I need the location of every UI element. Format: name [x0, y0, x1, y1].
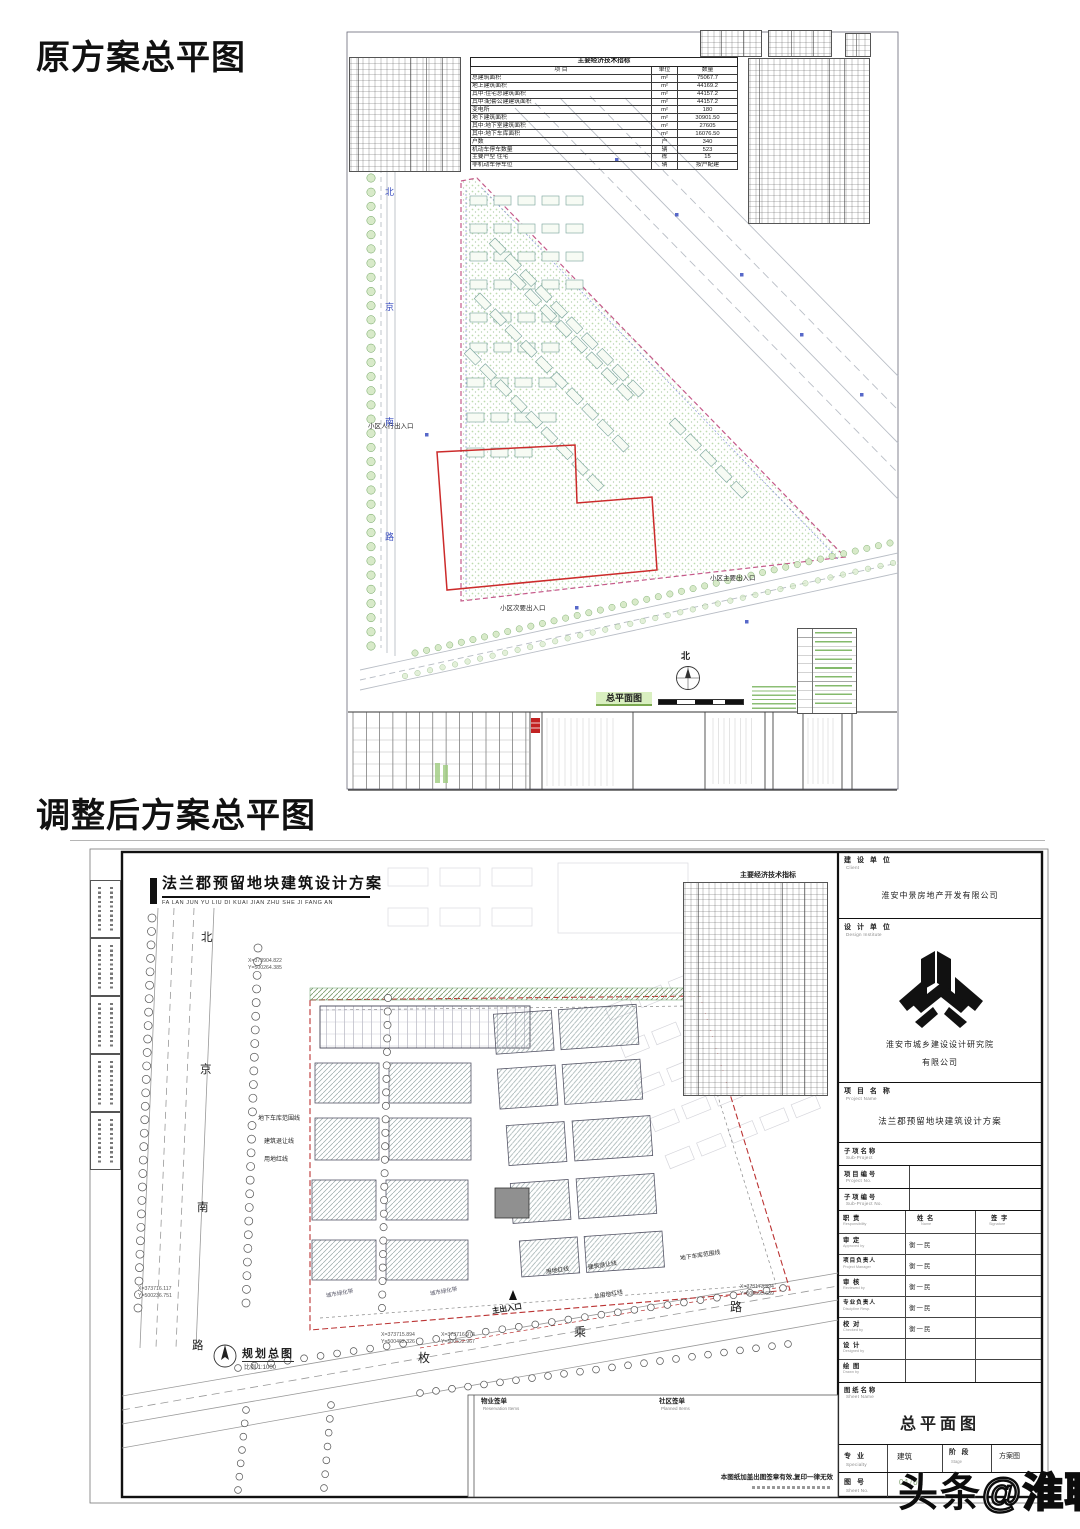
coord-label: X=373715.894Y=500462.326	[381, 1332, 415, 1345]
green-stamp	[435, 763, 440, 783]
validity-note-en	[752, 1486, 832, 1489]
coord-label: X=373904.822Y=500264.385	[248, 958, 282, 971]
green-belt-strip	[310, 988, 700, 1000]
box-left-label-en: Reservation Items	[483, 1407, 519, 1412]
titleblock-strip	[348, 712, 897, 790]
sig-row: 审 核Reviewed by衡一民	[839, 1275, 1041, 1297]
community-building	[495, 1188, 529, 1218]
existing-buildings-north	[388, 863, 688, 933]
new-building-left-cluster	[312, 1063, 471, 1280]
sig-row: 专业负责人Discipline Resp.衡一民	[839, 1296, 1041, 1318]
section1-title: 原方案总平图	[36, 30, 246, 79]
coord-label: X=373173.394Y=500595.639	[740, 1284, 774, 1297]
mini-table-3	[845, 33, 871, 57]
road-v-char: 京	[200, 1064, 212, 1077]
scale-bar	[658, 699, 744, 705]
road-char: 北	[385, 188, 394, 198]
title-bar-mark	[150, 878, 157, 904]
road-char: 南	[385, 418, 394, 428]
mini-table-1	[700, 30, 762, 57]
table-row: 机动车停车数量辆523	[471, 146, 738, 154]
table-row: 其中:住宅总建筑面积m²44157.2	[471, 90, 738, 98]
legend-table	[797, 628, 857, 714]
sig-row: 项目负责人Project Manager衡一民	[839, 1254, 1041, 1276]
watermark-outline: @淮聊	[982, 1471, 1080, 1515]
road-char: 路	[385, 533, 394, 543]
countersign-cell	[90, 1054, 121, 1112]
road-h-char: 乘	[574, 1326, 586, 1339]
table-row: 户数户340	[471, 138, 738, 146]
road-h-char: 枚	[418, 1352, 430, 1365]
sheet-name: 总平面图	[839, 1410, 1041, 1434]
coord-label: X=373716.117Y=500236.751	[138, 1286, 172, 1299]
plan-scale: 比例 1:1000	[244, 1365, 276, 1372]
garage-line-label: 地下车库范围线	[258, 1116, 300, 1123]
title-underline	[162, 896, 370, 898]
drawing-title: 法兰郡预留地块建筑设计方案	[162, 876, 383, 893]
table-row: 主要户型 住宅栋15	[471, 154, 738, 162]
subno-cell: 子项编号 Sub-Project No.	[839, 1189, 1041, 1211]
adjusted-plan-sheet: 法兰郡预留地块建筑设计方案 FA LAN JUN YU LIU DI KUAI …	[88, 848, 1063, 1508]
box-left-label: 物业签单	[481, 1398, 507, 1405]
table-row: 其中:地下车库面积m²16076.50	[471, 130, 738, 138]
sig-row: 绘 图Drawn by	[839, 1359, 1041, 1383]
plan-caption: 规划总图	[242, 1348, 294, 1362]
table-row: 其中:地下室建筑面积m²27605	[471, 122, 738, 130]
box-right-label: 社区签单	[659, 1398, 685, 1405]
econ2-table	[683, 882, 828, 1096]
design-institute-name: 淮安市城乡建设设计研究院	[839, 1039, 1041, 1050]
countersign-cell	[90, 938, 121, 996]
econ2-title: 主要经济技术指标	[708, 872, 828, 880]
design-institute-logo	[891, 943, 991, 1033]
box-right-label-en: Planned Items	[661, 1407, 690, 1412]
subproject-cell: 子项名称 Sub-Project	[839, 1143, 1041, 1166]
secondary-entrance-label: 小区次要出入口	[500, 605, 546, 612]
watermark-solid: 头条	[898, 1471, 982, 1515]
projectno-cell: 项目编号 Project No.	[839, 1166, 1041, 1189]
design-institute-name-2: 有限公司	[839, 1057, 1041, 1068]
bottom-box	[468, 1395, 838, 1497]
compass	[214, 1345, 236, 1367]
west-road-lines	[381, 168, 395, 656]
coord-label: X=373716.974Y=500522.967	[441, 1332, 475, 1345]
section2-title: 调整后方案总平图	[36, 788, 316, 837]
sig-row: 设 计Designed by	[839, 1338, 1041, 1360]
publisher-logo	[531, 718, 540, 733]
client-name: 淮安中景房地产开发有限公司	[839, 890, 1041, 901]
road-v-char: 路	[192, 1340, 204, 1353]
table-row: 变电所m²180	[471, 106, 738, 114]
road-char: 京	[385, 303, 394, 313]
original-plan-sheet: 主要经济技术指标 项 目单位数量 总建筑面积m²75067.7 地上建筑面积m²…	[345, 28, 900, 793]
watermark: 头条@淮聊	[898, 1460, 1080, 1518]
table-row: 地下建筑面积m²30901.50	[471, 114, 738, 122]
table-row: 地上建筑面积m²44169.2	[471, 82, 738, 90]
mini-table-2	[768, 30, 832, 57]
entrance-arrow	[509, 1290, 517, 1300]
economic-indicator-table: 主要经济技术指标 项 目单位数量 总建筑面积m²75067.7 地上建筑面积m²…	[470, 57, 738, 170]
sig-row: 校 对Checked by衡一民	[839, 1317, 1041, 1339]
main-entrance-label: 小区主要出入口	[710, 575, 756, 582]
table-row: 非机动车停车位辆按户配建	[471, 161, 738, 169]
north-arrow	[677, 667, 700, 690]
countersign-cell	[90, 996, 121, 1054]
road-v-char: 南	[197, 1202, 209, 1215]
tree-row-west	[367, 174, 375, 650]
table-row: 其中:配套公建建筑面积m²44157.2	[471, 98, 738, 106]
countersign-cell	[90, 1112, 121, 1170]
project-cell: 项 目 名 称 Project Name 法兰郡预留地块建筑设计方案	[839, 1083, 1041, 1143]
right-indicator-table	[748, 58, 870, 224]
new-building-right-cluster	[493, 1004, 664, 1278]
road-h-char: 路	[730, 1301, 742, 1314]
section2-underline	[70, 840, 1045, 841]
client-cell: 建 设 单 位 Client 淮安中景房地产开发有限公司	[839, 852, 1041, 919]
left-indicator-table	[349, 57, 461, 172]
north-label: 北	[681, 652, 690, 662]
plan-caption: 总平面图	[596, 692, 652, 706]
project-name: 法兰郡预留地块建筑设计方案	[839, 1115, 1041, 1127]
site-vegetation	[461, 178, 845, 601]
sheetname-cell: 图纸名称 Sheet Name 总平面图	[839, 1382, 1041, 1445]
green-notes	[752, 686, 796, 712]
road-v-char: 北	[201, 932, 213, 945]
econ-table-title: 主要经济技术指标	[471, 58, 738, 67]
sig-row: 审 定Approved by衡一民	[839, 1233, 1041, 1255]
validity-note: 本图纸加盖出图签章有效,复印一律无效	[648, 1474, 833, 1481]
setback-line-label: 建筑退让线	[264, 1139, 294, 1146]
redline-label: 用地红线	[264, 1157, 288, 1164]
setback-dashed-bottom	[320, 1284, 776, 1318]
countersign-cell	[90, 880, 121, 938]
title-pinyin: FA LAN JUN YU LIU DI KUAI JIAN ZHU SHE J…	[162, 900, 333, 906]
table-row: 总建筑面积m²75067.7	[471, 74, 738, 82]
sig-header-row: 职 责Responsibility 姓 名Name 签 字Signature	[839, 1211, 1041, 1234]
designer-cell: 设 计 单 位 Design Institute 淮安市城乡建设设计研究院 有限…	[839, 919, 1041, 1083]
